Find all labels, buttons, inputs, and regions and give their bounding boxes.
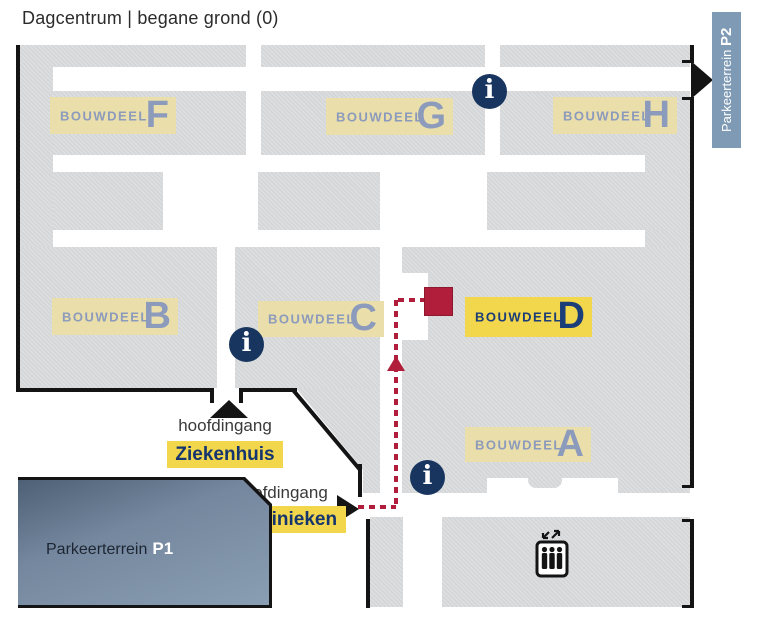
route-direction-arrow [387, 356, 405, 371]
boundary-line-bottom [239, 388, 297, 392]
label-bouwdeel-a: BOUWDEEL A [465, 427, 591, 462]
boundary-line-right [690, 97, 694, 488]
parking-p2-label: Parkeerterrein P2 [712, 12, 741, 148]
label-bouwdeel-h: BOUWDEEL H [553, 97, 677, 134]
building-block [20, 45, 246, 67]
hospital-floor-map: Dagcentrum | begane grond (0) BOUWDEEL F [0, 0, 761, 625]
label-bouwdeel-b: BOUWDEEL B [52, 298, 178, 335]
parking-p1-label: ParkeerterreinP1 [46, 539, 173, 559]
boundary-line-left [16, 45, 20, 392]
building-block [487, 172, 690, 230]
info-icon: i [410, 460, 445, 495]
building-block [53, 172, 163, 230]
boundary-line-right [690, 519, 694, 608]
boundary-tick [682, 605, 693, 608]
label-bouwdeel-g: BOUWDEEL G [326, 98, 453, 135]
boundary-wall [366, 519, 370, 608]
route-segment [398, 298, 425, 302]
building-block [261, 45, 485, 67]
building-block [258, 172, 380, 230]
entrance-badge-ziekenhuis: Ziekenhuis [167, 441, 283, 468]
boundary-tick [682, 485, 693, 488]
info-icon: i [472, 74, 507, 109]
route-segment [358, 505, 396, 509]
info-icon: i [229, 327, 264, 362]
boundary-wall [358, 464, 362, 497]
route-segment [394, 300, 398, 509]
boundary-tick [682, 519, 693, 522]
map-title: Dagcentrum | begane grond (0) [22, 8, 279, 29]
parking-p2: Parkeerterrein P2 [712, 12, 741, 148]
label-bouwdeel-d: BOUWDEEL D [465, 297, 592, 337]
exit-arrow-p2 [691, 61, 713, 99]
building-tab [528, 478, 562, 488]
destination-marker [424, 287, 453, 316]
label-bouwdeel-c: BOUWDEEL C [258, 301, 384, 337]
entrance-text-ziekenhuis: hoofdingang [160, 416, 290, 436]
building-block [500, 45, 690, 67]
label-bouwdeel-f: BOUWDEEL F [50, 97, 176, 134]
parking-p1: ParkeerterreinP1 [18, 477, 272, 608]
elevator-icon [532, 528, 572, 580]
boundary-line-bottom [16, 388, 213, 392]
building-block [370, 517, 403, 607]
